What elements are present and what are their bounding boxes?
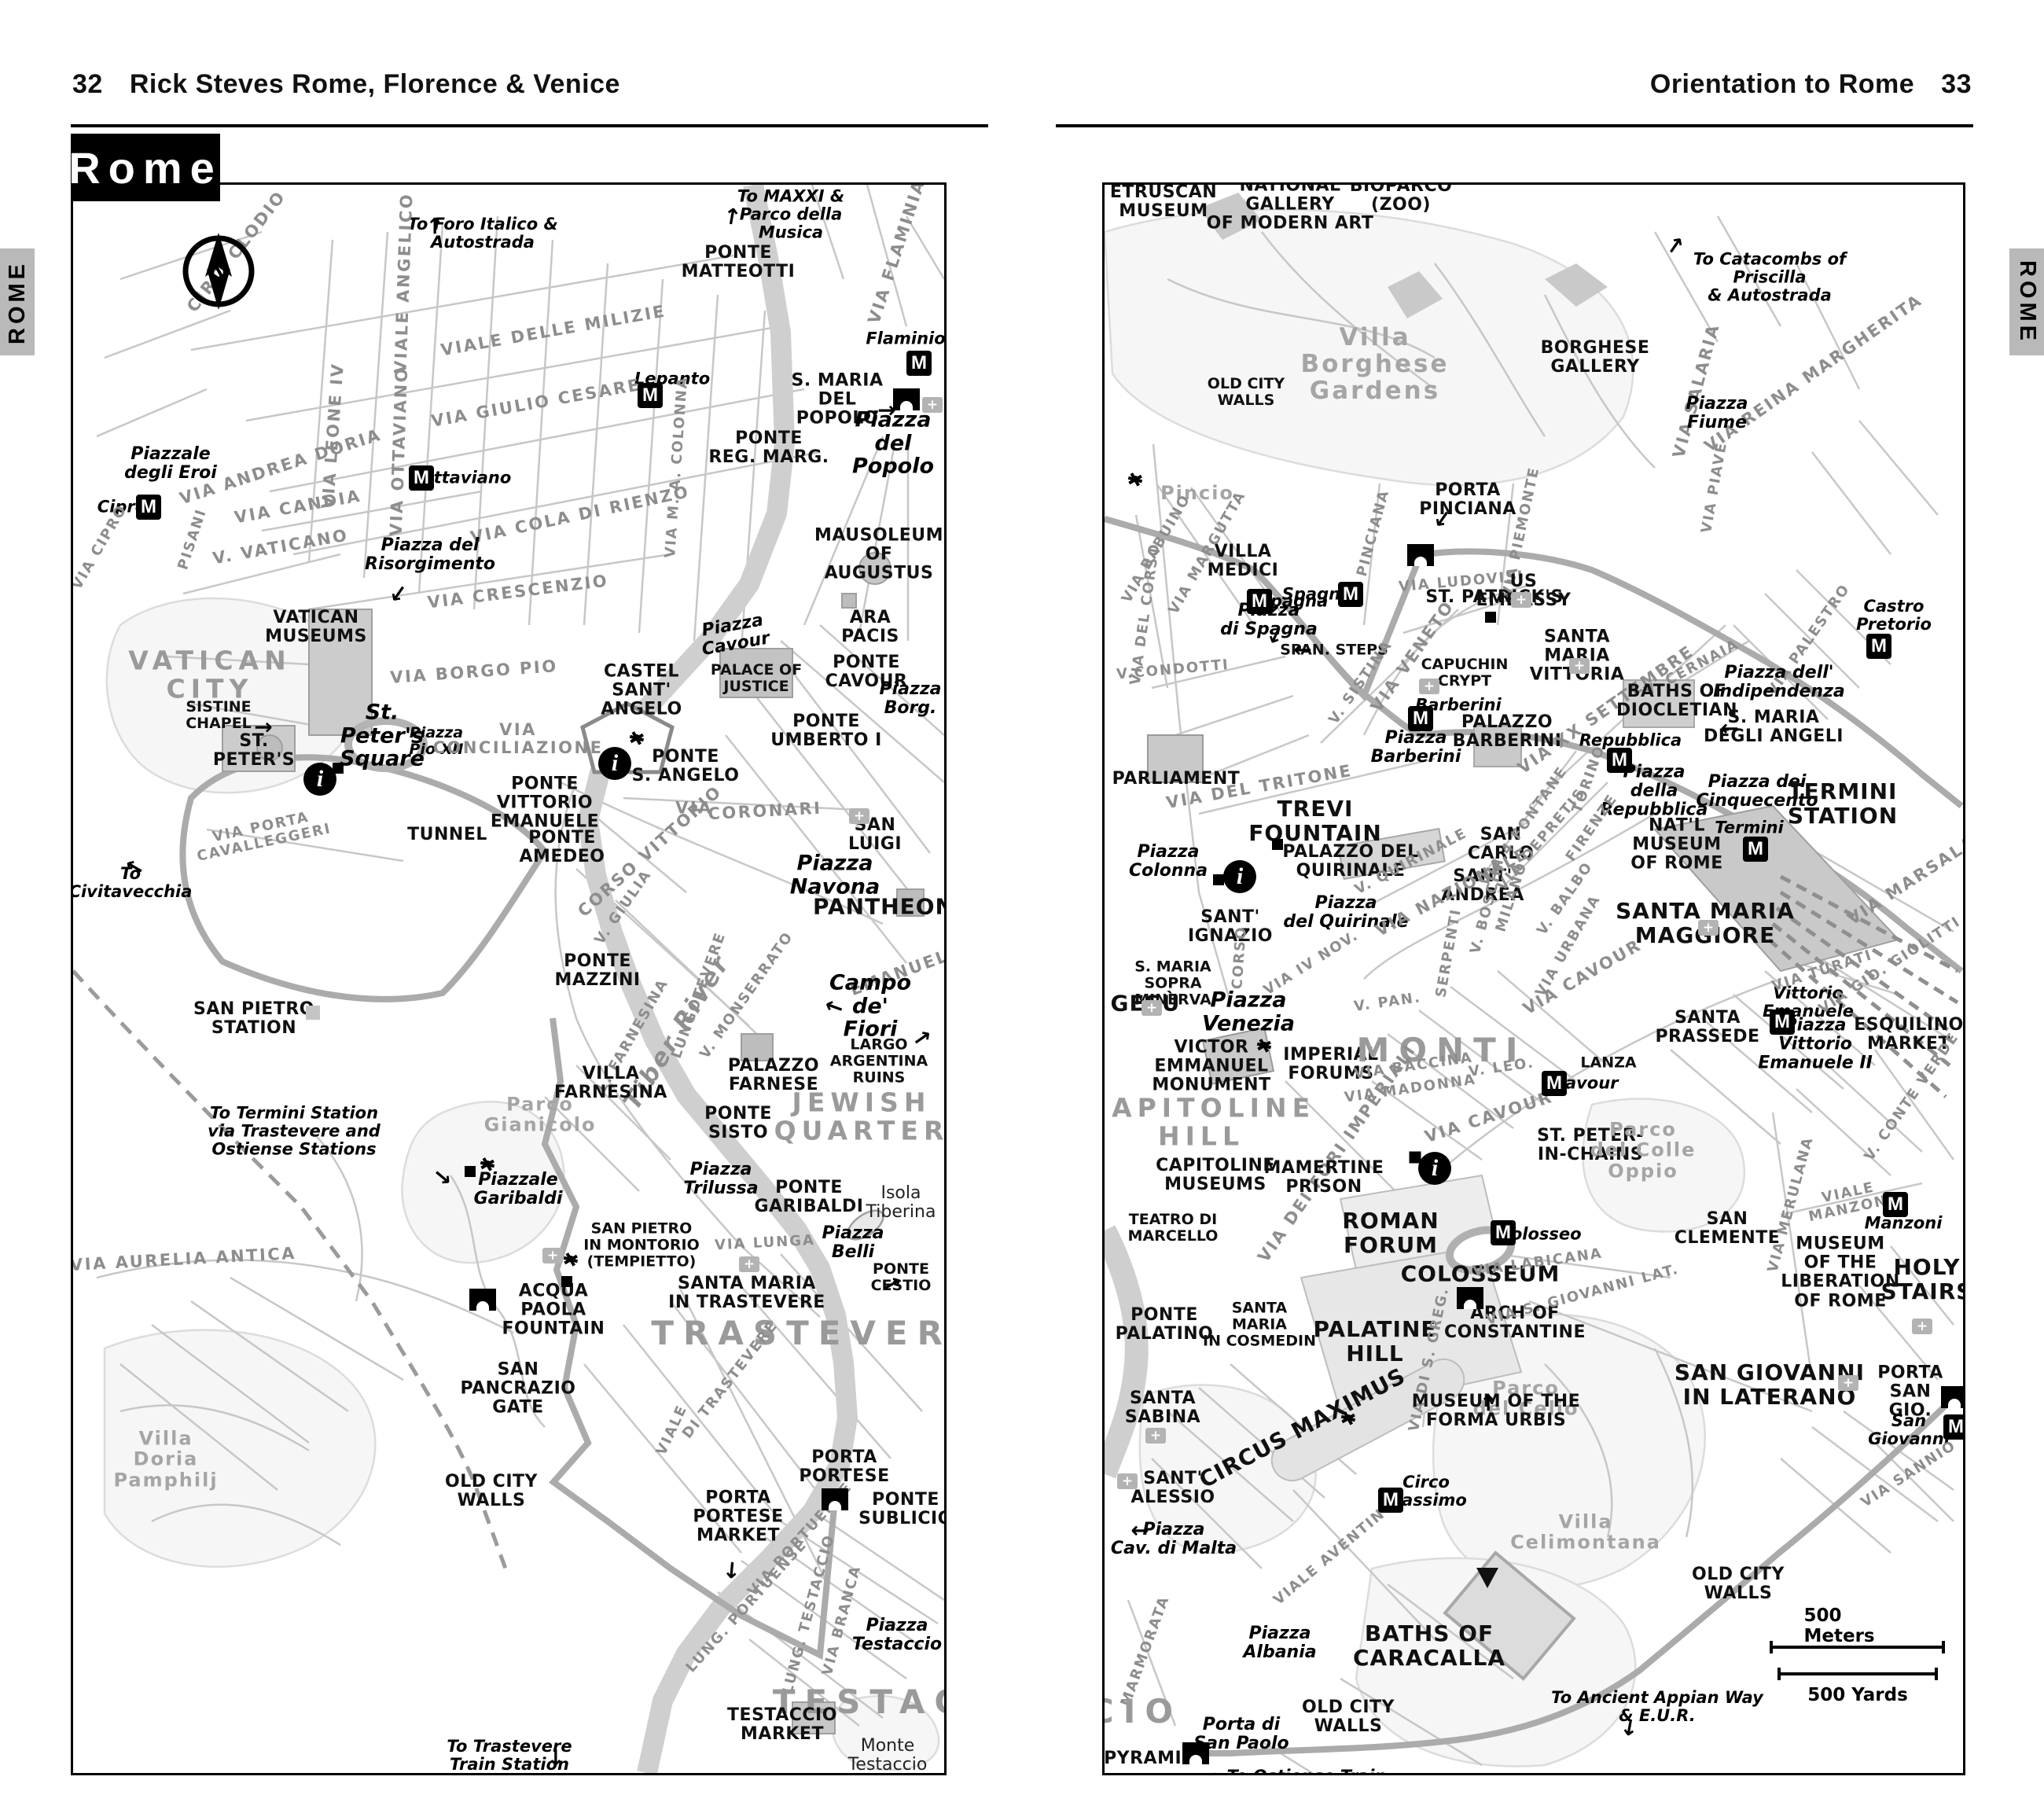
map-label-ponte-mazzini: PONTE MAZZINI xyxy=(554,952,640,990)
map-label-piazza-colonna: Piazza Colonna xyxy=(1129,843,1208,881)
direction-arrow-icon: → xyxy=(1130,1520,1149,1542)
map-label-ponte-garibaldi: PONTE GARIBALDI xyxy=(755,1179,864,1216)
map-label-capitoline-hill: CAPITOLINE HILL xyxy=(1102,1094,1315,1152)
map-label-largo-argentina-ruins: LARGO ARGENTINA RUINS xyxy=(830,1037,928,1087)
map-label-san-pancrazio-gate: SAN PANCRAZIO GATE xyxy=(461,1361,576,1418)
scale-meters-label: 500 Meters xyxy=(1804,1606,1910,1646)
diamond-marker-icon xyxy=(1410,1152,1421,1164)
map-label-ponte-amedeo: PONTE AMEDEO xyxy=(520,829,605,866)
map-label-termini: Termini xyxy=(1715,818,1783,837)
map-label-piazza-fiume: Piazza Fiume xyxy=(1686,395,1748,432)
map-label-parco-gianicolo: Parco Gianicolo xyxy=(484,1094,597,1136)
map-label-villa-celimontana: Villa Celimontana xyxy=(1510,1512,1661,1554)
map-label-mamertine-prison: MAMERTINE PRISON xyxy=(1264,1159,1384,1197)
metro-icon: M xyxy=(409,465,434,491)
right-page-header: Orientation to Rome33 xyxy=(1650,69,1972,100)
map-label-sant-ignazio: SANT' IGNAZIO xyxy=(1188,908,1273,946)
viewpoint-icon xyxy=(563,1251,579,1267)
left-page-number: 32 xyxy=(72,69,103,99)
metro-icon: M xyxy=(1338,582,1363,607)
direction-arrow-icon: → xyxy=(1720,718,1738,740)
gate-arch xyxy=(900,401,913,410)
map-label-old-city-walls: OLD CITY WALLS xyxy=(445,1473,538,1510)
map-label-to-termini-station-via-trastevere-and-os: To Termini Station via Trastevere and Os… xyxy=(208,1104,380,1158)
landmark-square-icon xyxy=(1485,612,1496,623)
left-page-header: 32Rick Steves Rome, Florence & Venice xyxy=(72,69,620,100)
map-label-old-city-walls: OLD CITY WALLS xyxy=(1208,376,1285,409)
map-label-lanza: LANZA xyxy=(1580,1055,1636,1072)
church-icon: + xyxy=(542,1248,563,1263)
map-label-capitoline-museums: CAPITOLINE MUSEUMS xyxy=(1156,1157,1275,1194)
direction-arrow-icon: → xyxy=(424,216,446,234)
map-label-teatro-di-marcello: TEATRO DI MARCELLO xyxy=(1128,1212,1219,1245)
map-label-piazzale-degli-eroi: Piazzale degli Eroi xyxy=(124,445,217,483)
map-panel-left: N CIRC. CLODIOTo Foro Italico & Autostra… xyxy=(71,182,947,1775)
map-label-testaccio-market: TESTACCIO MARKET xyxy=(727,1706,837,1744)
map-label-sant-alessio: SANT' ALESSIO xyxy=(1130,1469,1215,1507)
viewpoint-icon xyxy=(1256,1037,1272,1053)
church-icon: + xyxy=(1569,658,1590,674)
metro-icon: M xyxy=(906,351,932,376)
metro-icon: M xyxy=(1491,1220,1516,1245)
metro-icon: M xyxy=(1770,1010,1795,1035)
map-label-santa-prassede: SANTA PRASSEDE xyxy=(1655,1009,1759,1046)
metro-icon: M xyxy=(1542,1071,1567,1096)
gate-arch xyxy=(829,1501,841,1510)
metro-icon: M xyxy=(1607,748,1632,773)
map-label-porta-portese-market: PORTA PORTESE MARKET xyxy=(693,1489,783,1547)
city-gate-icon xyxy=(822,1488,848,1510)
map-title-banner: Rome xyxy=(71,134,220,201)
map-label-piazza-navona: Piazza Navona xyxy=(790,851,880,898)
metro-icon: M xyxy=(1378,1488,1403,1513)
metro-icon: M xyxy=(1247,589,1272,614)
tiber-river xyxy=(1105,1230,1137,1474)
scale-yards-label: 500 Yards xyxy=(1807,1685,1908,1705)
map-label-to-catacombs-of-priscilla-autostrada: To Catacombs of Priscilla & Autostrada xyxy=(1673,250,1866,304)
map-label-jewish-quarter: JEWISH QUARTER xyxy=(774,1089,947,1146)
map-label-piazza-venezia: Piazza Venezia xyxy=(1202,988,1295,1035)
map-label-isola-tiberina: Isola Tiberina xyxy=(866,1184,936,1222)
map-label-national-gallery-of-modern-art: NATIONAL GALLERY OF MODERN ART xyxy=(1207,182,1374,234)
map-label-piazza-belli: Piazza Belli xyxy=(822,1224,884,1262)
city-gate-icon xyxy=(1182,1742,1209,1764)
viewpoint-icon xyxy=(1127,471,1143,487)
map-label-etruscan-museum: ETRUSCAN MUSEUM xyxy=(1110,183,1217,221)
map-label-castel-sant-angelo: CASTEL SANT' ANGELO xyxy=(601,663,682,720)
map-label-ponte-sublicio: PONTE SUBLICIO xyxy=(858,1491,947,1528)
church-icon: + xyxy=(1419,679,1439,694)
direction-arrow-icon: → xyxy=(1477,1393,1499,1411)
side-tab-rome: ROME xyxy=(0,248,35,355)
gate-arch xyxy=(1948,1399,1961,1408)
map-label-san-pietro-station: SAN PIETRO STATION xyxy=(193,1000,314,1038)
church-icon: + xyxy=(739,1256,759,1272)
map-label-trevi-fountain: TREVI FOUNTAIN xyxy=(1248,797,1382,846)
gate-arch xyxy=(1414,557,1427,566)
map-title: Rome xyxy=(68,142,222,193)
map-label-bioparco-zoo: BIOPARCO (ZOO) xyxy=(1350,182,1453,215)
tourist-info-icon: i xyxy=(1418,1152,1451,1185)
direction-arrow-icon: → xyxy=(877,399,895,421)
map-label-ponte-reg-marg: PONTE REG. MARG. xyxy=(708,429,829,467)
metro-icon: M xyxy=(1883,1192,1908,1217)
direction-arrow-icon: → xyxy=(1617,1716,1642,1738)
landmark-square-icon xyxy=(333,763,344,774)
map-label-santa-maria-vittoria: SANTA MARIA VITTORIA xyxy=(1530,628,1625,686)
gate-arch xyxy=(1464,1300,1476,1309)
church-icon: + xyxy=(1698,920,1719,936)
city-gate-icon xyxy=(1457,1287,1483,1309)
direction-arrow-icon: → xyxy=(1293,639,1311,661)
metro-icon: M xyxy=(1866,634,1891,659)
map-label-palatine-hill: PALATINE HILL xyxy=(1313,1318,1436,1366)
map-label-holy-stairs: HOLY STAIRS xyxy=(1881,1256,1965,1304)
map-label-borghese-gallery: BORGHESE GALLERY xyxy=(1541,339,1650,377)
map-label-nat-l-museum-of-rome: NAT'L MUSEUM OF ROME xyxy=(1630,817,1722,874)
church-icon: + xyxy=(1912,1319,1932,1334)
map-label-san-clemente: SAN CLEMENTE xyxy=(1675,1210,1781,1248)
metro-icon: M xyxy=(136,495,161,520)
map-label-piazza-borg: Piazza Borg. xyxy=(880,680,942,718)
map-label-santa-maria-in-cosmedin: SANTA MARIA IN COSMEDIN xyxy=(1203,1300,1316,1350)
metro-icon: M xyxy=(1743,837,1768,862)
side-tab-rome: ROME xyxy=(2009,248,2044,355)
map-label-villa-doria-pamphilj: Villa Doria Pamphilj xyxy=(113,1428,218,1490)
church-icon: + xyxy=(1838,1375,1858,1391)
map-label-ponte-umberto-i: PONTE UMBERTO I xyxy=(770,712,882,750)
map-label-to-maxxi-parco-della-musica: To MAXXI & Parco della Musica xyxy=(737,187,844,241)
map-label-ponte-s-angelo: PONTE S. ANGELO xyxy=(632,748,740,785)
church-icon: + xyxy=(1511,592,1531,608)
tourist-info-icon: i xyxy=(303,763,336,796)
map-label-cio: CIO xyxy=(1102,1694,1182,1730)
map-label-ponte-vittorio-emanuele: PONTE VITTORIO EMANUELE xyxy=(491,775,599,833)
map-label-san-pietro-in-montorio-tempietto: SAN PIETRO IN MONTORIO (TEMPIETTO) xyxy=(583,1221,700,1271)
map-label-trastevere: TRASTEVERE xyxy=(651,1315,947,1352)
direction-arrow-icon: → xyxy=(545,1748,567,1766)
map-label-victor-emmanuel-monument: VICTOR EMMANUEL MONUMENT xyxy=(1152,1039,1270,1096)
church-icon: + xyxy=(922,397,943,413)
map-label-old-city-walls: OLD CITY WALLS xyxy=(1692,1565,1785,1603)
right-page-title: Orientation to Rome xyxy=(1650,69,1914,99)
map-label-to-ostiense-train-station-e-u-r: To Ostiense Train Station & E.U.R. xyxy=(1227,1767,1387,1775)
landmark-square-icon xyxy=(1272,839,1283,850)
map-label-pantheon: PANTHEON xyxy=(813,896,947,920)
tourist-info-icon: i xyxy=(1223,860,1256,893)
map-label-piazza-albania: Piazza Albania xyxy=(1243,1624,1316,1662)
compass-letter: N xyxy=(209,256,229,286)
direction-arrow-icon: → xyxy=(254,716,272,738)
map-label-san-giovanni-in-laterano: SAN GIOVANNI IN LATERANO xyxy=(1675,1361,1865,1410)
map-label-to-ancient-appian-way-e-u-r: To Ancient Appian Way & E.U.R. xyxy=(1551,1689,1763,1725)
map-label-vatican-museums: VATICAN MUSEUMS xyxy=(265,609,367,646)
city-gate-icon xyxy=(1941,1386,1965,1408)
map-label-termini-station: TERMINI STATION xyxy=(1788,780,1898,829)
landmark-square-icon xyxy=(465,1166,476,1177)
city-gate-icon xyxy=(1407,544,1434,566)
viewpoint-icon xyxy=(480,1156,495,1171)
compass-icon: N xyxy=(175,228,262,314)
map-label-via-conciliazione: VIA CONCILIAZIONE xyxy=(433,721,604,757)
landmark-square-icon xyxy=(561,1276,572,1287)
church-icon: + xyxy=(849,808,869,824)
map-label-palace-of-justice: PALACE OF JUSTICE xyxy=(711,662,802,695)
map-label-piazza-barberini: Piazza Barberini xyxy=(1371,729,1461,767)
map-label-sistine-chapel: SISTINE CHAPEL xyxy=(186,699,252,732)
map-label-san-giovanni: San Giovanni xyxy=(1868,1412,1950,1448)
metro-icon: M xyxy=(638,383,663,408)
map-label-ponte-palatino: PONTE PALATINO xyxy=(1116,1306,1214,1344)
map-label-monte-testaccio: Monte Testaccio xyxy=(848,1737,928,1775)
map-label-villa-borghese-gardens: Villa Borghese Gardens xyxy=(1301,324,1450,404)
map-label-old-city-walls: OLD CITY WALLS xyxy=(1302,1698,1395,1736)
map-label-santa-sabina: SANTA SABINA xyxy=(1125,1389,1200,1427)
map-label-acqua-paola-fountain: ACQUA PAOLA FOUNTAIN xyxy=(502,1282,605,1340)
church-icon: + xyxy=(1141,1000,1162,1016)
map-label-ara-pacis: ARA PACIS xyxy=(841,609,899,646)
big-arrow-icon xyxy=(1476,1568,1498,1588)
gate-arch xyxy=(1189,1755,1202,1764)
church-icon: + xyxy=(1145,1428,1166,1444)
book-spread: 32Rick Steves Rome, Florence & Venice Or… xyxy=(0,0,2044,1817)
direction-arrow-icon: → xyxy=(720,1560,744,1580)
direction-arrow-icon: → xyxy=(719,205,744,227)
metro-icon: M xyxy=(1943,1414,1965,1440)
map-label-santa-maria-in-trastevere: SANTA MARIA IN TRASTEVERE xyxy=(668,1274,825,1312)
gate-arch xyxy=(476,1301,489,1311)
map-panel-right: 500 Meters 500 Yards ETRUSCAN MUSEUMNATI… xyxy=(1102,182,1965,1775)
city-gate-icon xyxy=(469,1289,496,1311)
map-label-vatican-city: VATICAN CITY xyxy=(128,647,291,704)
map-label-piazza-del-risorgimento: Piazza del Risorgimento xyxy=(365,536,495,574)
station-square-icon xyxy=(306,1006,320,1020)
map-label-tunnel: TUNNEL xyxy=(407,826,487,844)
metro-icon: M xyxy=(1408,706,1433,731)
map-label-flaminio: Flaminio xyxy=(866,329,945,348)
map-label-piazza-cav-di-malta: Piazza Cav. di Malta xyxy=(1111,1521,1237,1558)
scale-bars xyxy=(1771,1641,1943,1680)
map-label-piazza-testaccio: Piazza Testaccio xyxy=(852,1617,942,1654)
map-label-piazzale-garibaldi: Piazzale Garibaldi xyxy=(474,1171,563,1208)
viewpoint-icon xyxy=(1340,1410,1356,1425)
left-page-title: Rick Steves Rome, Florence & Venice xyxy=(130,69,620,99)
map-label-roman-forum: ROMAN FORUM xyxy=(1342,1209,1439,1258)
tourist-info-icon: i xyxy=(598,747,631,780)
header-rule xyxy=(71,124,988,127)
church-icon: + xyxy=(1117,1473,1138,1489)
map-label-ponte-sisto: PONTE SISTO xyxy=(704,1105,772,1142)
map-label-baths-of-caracalla: BATHS OF CARACALLA xyxy=(1353,1622,1505,1671)
map-label-pincio: Pincio xyxy=(1160,483,1234,503)
map-label-piazza-trilussa: Piazza Trilussa xyxy=(683,1160,758,1198)
landmark-square-icon xyxy=(1213,874,1224,885)
map-label-ponte-matteotti: PONTE MATTEOTTI xyxy=(682,244,796,281)
city-gate-icon xyxy=(893,388,920,410)
map-label-castro-pretorio: Castro Pretorio xyxy=(1856,598,1932,634)
right-page-number: 33 xyxy=(1941,69,1972,99)
map-label-parco-del-colle-oppio: Parco del Colle Oppio xyxy=(1590,1119,1697,1181)
side-tab-label: ROME xyxy=(5,260,31,344)
viewpoint-icon xyxy=(629,730,645,745)
side-tab-label: ROME xyxy=(2014,260,2040,344)
map-label-mausoleum-of-augustus: MAUSOLEUM OF AUGUSTUS xyxy=(814,527,943,584)
header-rule xyxy=(1056,124,1973,127)
